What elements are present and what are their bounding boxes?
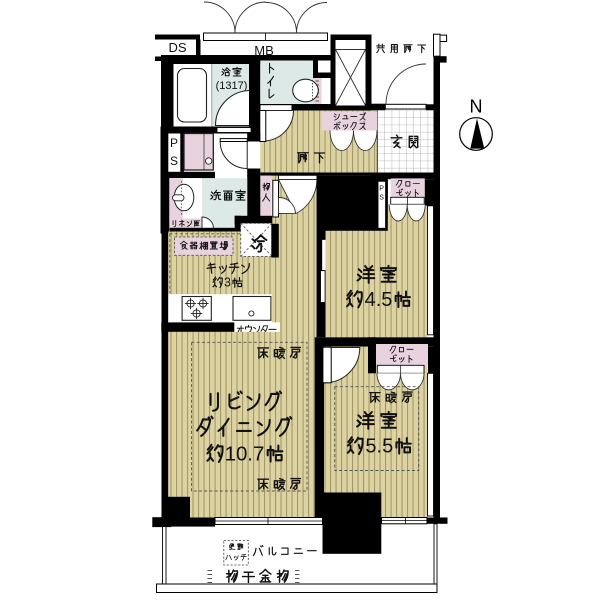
svg-text:5: 5: [365, 435, 376, 457]
svg-text:7: 7: [253, 442, 264, 465]
svg-text:4: 4: [365, 289, 376, 311]
svg-text:5: 5: [381, 289, 392, 311]
svg-text:3: 3: [224, 276, 231, 290]
svg-text:D: D: [169, 40, 178, 55]
svg-text:0: 0: [236, 442, 247, 465]
svg-text:P: P: [379, 186, 384, 193]
svg-text:S: S: [379, 195, 384, 202]
svg-text:5: 5: [382, 435, 393, 457]
svg-text:M: M: [254, 43, 265, 58]
svg-text:N: N: [470, 97, 483, 117]
svg-text:1: 1: [225, 442, 236, 465]
svg-text:S: S: [170, 154, 178, 168]
svg-text:P: P: [170, 136, 178, 150]
svg-text:S: S: [178, 40, 187, 55]
svg-text:B: B: [265, 43, 274, 58]
